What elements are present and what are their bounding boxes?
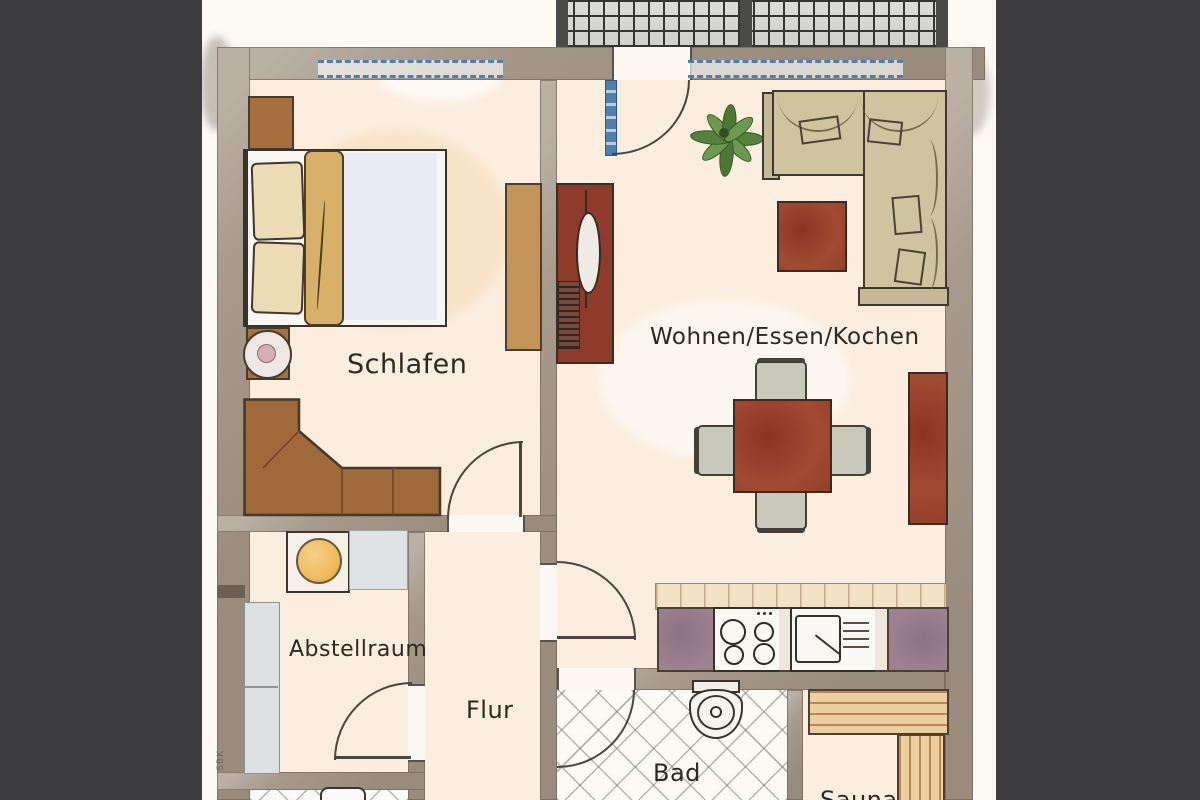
storage-shelf [244, 602, 280, 774]
washing-machine-drum [296, 538, 342, 584]
opening-balcony-door [612, 47, 692, 80]
dining-table [733, 399, 832, 493]
balcony-post-right [936, 0, 948, 47]
stove-knob [763, 612, 766, 615]
sauna-bench-top [808, 689, 949, 735]
counter-filler [779, 607, 790, 672]
backdrop-right [996, 0, 1200, 800]
sauna-bench-right [897, 734, 945, 800]
kitchen-counter-left [657, 607, 717, 672]
dining-chair-bottom [755, 488, 807, 530]
dining-chair-left [697, 425, 738, 476]
wall-stub [217, 585, 245, 598]
room-label-schlafen: Schlafen [347, 349, 467, 380]
wall-right [945, 47, 973, 800]
stool-center [257, 344, 276, 363]
bedroom-cabinet [505, 183, 542, 351]
room-label-bad: Bad [653, 759, 701, 787]
dining-chair-right [827, 425, 868, 476]
pillow [251, 161, 306, 241]
bed-duvet [340, 153, 437, 320]
kitchen-backsplash-tiles [655, 583, 947, 610]
drying-rack-line [843, 622, 869, 624]
wc-basin [320, 787, 366, 800]
wall-bottom-left [217, 772, 425, 790]
coffee-table [777, 201, 847, 272]
wardrobe-l-shaped [243, 398, 442, 518]
sofa-cushion [894, 248, 926, 286]
drying-rack-line [843, 630, 869, 632]
room-label-wohnen: Wohnen/Essen/Kochen [650, 324, 920, 350]
drying-rack-line [843, 646, 869, 648]
window-living [688, 60, 903, 78]
room-label-sauna: Sauna [820, 786, 898, 800]
dryer [349, 530, 408, 590]
toilet-drain [710, 706, 722, 718]
stove-burner [720, 619, 746, 645]
speaker-box [558, 281, 580, 349]
wall-middle [540, 80, 557, 800]
opening-living-door [540, 563, 557, 642]
storage-shelf-divider [244, 686, 278, 688]
backdrop-left [0, 0, 202, 800]
potted-plant [688, 102, 760, 174]
room-label-abstellraum: Abstellraum [289, 637, 427, 662]
sofa-cushion [867, 118, 903, 145]
opening-bath-door [557, 668, 636, 690]
room-label-flur: Flur [466, 696, 514, 724]
balcony-grating [558, 0, 948, 52]
dining-chair-top [755, 361, 807, 404]
hallway-floor [425, 532, 540, 800]
stove-knob [757, 612, 760, 615]
stove-burner [753, 643, 775, 665]
drying-rack-line [843, 638, 869, 640]
kitchen-counter-right [887, 607, 949, 672]
bed-blanket [304, 150, 344, 326]
sideboard [908, 372, 948, 525]
balcony-post-middle [740, 0, 752, 47]
balcony-post-left [556, 0, 568, 47]
pillow [251, 241, 305, 315]
stove-burner [724, 645, 744, 665]
window-bedroom [318, 60, 503, 78]
floor-plan-screenshot: { "document": { "kind": "hand-drawn apar… [0, 0, 1200, 800]
nightstand [248, 96, 294, 150]
counter-filler [875, 607, 887, 672]
wall-bath-sauna [787, 690, 803, 800]
stove-knob [769, 612, 772, 615]
stove-burner [754, 622, 774, 642]
sofa-cushion [891, 195, 922, 235]
watermark-text: SBK [216, 750, 226, 771]
